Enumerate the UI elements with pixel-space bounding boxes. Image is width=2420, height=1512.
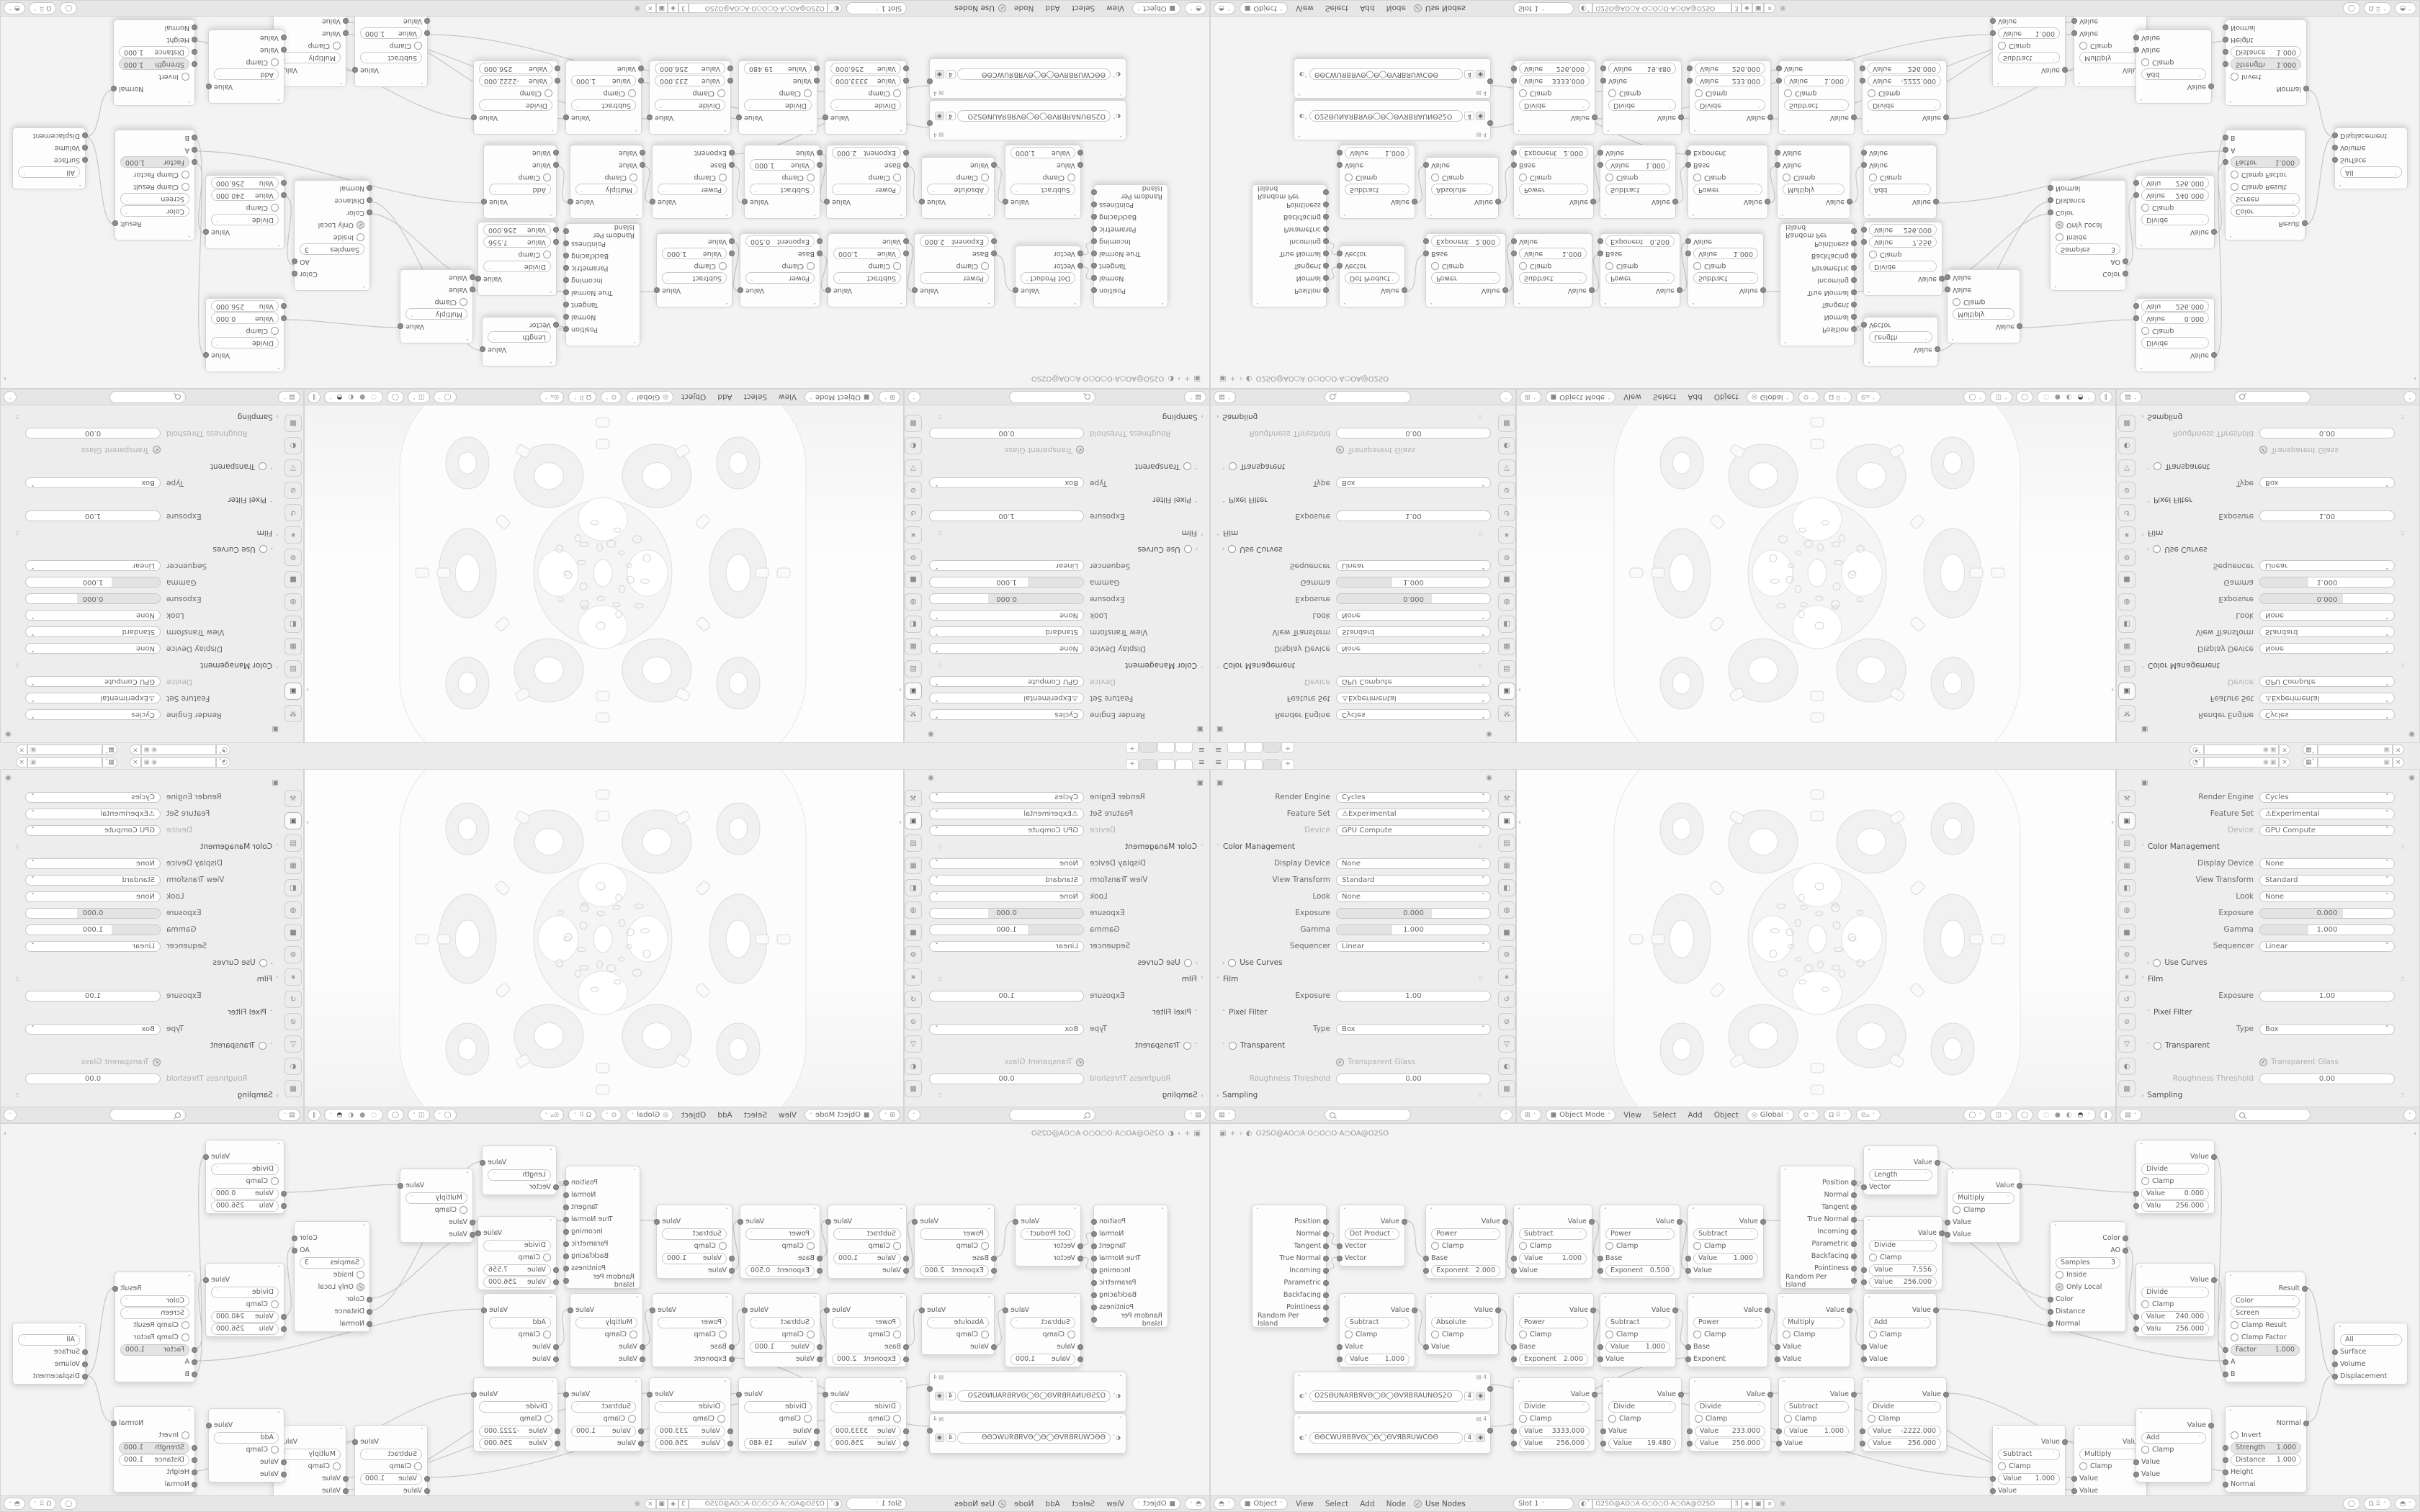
output-socket[interactable] [1765,199,1770,204]
node-header[interactable]: ˇ [1600,1294,1675,1304]
toggle-use-curves[interactable]: ›Use Curves [9,544,273,555]
view-layer-selector[interactable]: ▦ˇ▣× [2303,757,2404,768]
shading-solid-icon[interactable]: ● [358,394,367,401]
checkbox[interactable] [543,1331,551,1338]
input-socket[interactable] [2223,1457,2228,1463]
group-name-field[interactable]: ΘΘCWUЯBЯVΘ◯Θ◯ΘVЯBЯUWCΘΘ [1309,1432,1463,1444]
editor-type-button[interactable]: ▤ˇ [2120,391,2142,403]
node-dropdown[interactable]: Subtractˇ [1998,53,2060,64]
overlays-dropdown[interactable]: ◫ˇ [1990,1109,2012,1121]
output-socket[interactable] [1323,251,1329,256]
node-header[interactable]: ˇ [209,1409,284,1419]
input-socket[interactable] [2071,18,2077,24]
dropdown[interactable]: Noneˇ [929,858,1084,869]
node-dropdown[interactable]: Subtractˇ [1605,184,1670,196]
checkbox[interactable] [719,262,727,270]
input-socket[interactable] [1511,251,1517,256]
checkbox[interactable] [1869,251,1877,258]
node[interactable]: ˇValueSubtractˇClampValue1.000Value [1688,1205,1764,1279]
input-socket[interactable] [2133,1459,2139,1465]
node[interactable]: ˇPositionNormalTangentTrue NormalIncomin… [1780,223,1855,346]
input-socket[interactable] [1337,150,1343,156]
node-header[interactable]: ˇ [922,1294,994,1304]
node[interactable]: ˇValuePowerˇClampBaseExponent [1688,145,1768,219]
node-header[interactable]: ˇ [1864,285,1942,295]
output-socket[interactable] [647,1392,653,1398]
output-socket[interactable] [292,258,297,264]
dropdown[interactable]: ⚠Experimentalˇ [929,693,1084,703]
properties-tab-physics[interactable]: ↺ [284,504,302,521]
checkbox[interactable] [1431,1331,1439,1338]
output-socket[interactable] [1013,287,1018,293]
node-dropdown[interactable]: Divideˇ [2141,1164,2209,1175]
input-socket[interactable] [1597,1256,1603,1261]
snap-toggle[interactable]: ◯ [60,1498,77,1510]
input-socket[interactable] [1990,30,1996,36]
properties-tab-output[interactable]: ▤ [2118,834,2136,852]
properties-tab-render[interactable]: ▣ [2118,812,2136,829]
output-socket[interactable] [1943,1392,1949,1398]
value-field[interactable]: Distance1.000 [119,47,189,58]
field-render-engine[interactable]: Cyclesˇ [929,791,1084,803]
shading-mode-buttons[interactable]: ◌●◐◓ˇ [2037,391,2095,403]
input-socket[interactable] [2223,37,2228,42]
input-socket[interactable] [1597,162,1603,168]
field-view-transform[interactable]: Standardˇ [25,874,161,886]
field-feature-set[interactable]: ⚠Experimentalˇ [25,808,161,819]
output-socket[interactable] [825,1219,831,1225]
input-socket[interactable] [1600,66,1606,71]
properties-tab-particles[interactable]: ∗ [2118,526,2136,544]
properties-tab-object[interactable]: ■ [284,924,302,941]
input-socket[interactable] [729,1356,735,1362]
pin-icon[interactable]: ◉ [5,730,12,738]
input-socket[interactable] [1861,150,1867,156]
input-socket[interactable] [1945,287,1950,292]
node-header[interactable]: ˇ [825,124,906,134]
output-socket[interactable] [352,1439,358,1445]
node[interactable]: ˇValuePowerˇClampBaseExponent0.500 [740,233,820,307]
checkbox[interactable] [717,1415,725,1423]
checkbox[interactable] [628,89,636,97]
node-dropdown[interactable]: Powerˇ [832,1317,901,1328]
value-field[interactable]: Valu256.000 [211,1323,279,1335]
input-socket[interactable] [2133,315,2139,321]
checkbox[interactable] [1519,174,1527,181]
input-socket[interactable] [553,1184,559,1190]
sidebar-expand-icon[interactable]: ‹ [4,374,6,382]
properties-tab-tool[interactable]: ⚒ [905,790,922,807]
output-socket[interactable] [1765,1308,1770,1313]
node[interactable]: ˇValueSubtractˇClampValue1.000Value [565,1377,642,1452]
close-icon[interactable]: × [1764,1499,1775,1509]
field-type[interactable]: Boxˇ [2259,477,2395,489]
output-socket[interactable] [823,1392,828,1398]
node-header[interactable]: ˇ [295,280,369,290]
properties-tab-object[interactable]: ■ [905,924,922,941]
value-field[interactable]: Valu256.000 [2141,178,2209,189]
value-field[interactable]: Value233.000 [1695,76,1765,87]
output-socket[interactable] [2303,1421,2309,1426]
node[interactable]: ˇColorAOSamples3Inside✓Only LocalColorDi… [294,180,370,291]
workspace-tab[interactable] [1227,743,1245,753]
input-socket[interactable] [638,78,644,84]
node[interactable]: ˇValueSubtractˇClampValue1.000Value [656,233,732,307]
value-field[interactable]: Exponent0.500 [1605,236,1675,248]
input-socket[interactable] [991,1268,997,1274]
node-header[interactable]: ˇ [295,1222,369,1232]
output-socket[interactable] [563,1205,569,1210]
node-header[interactable]: ˇ [1688,1294,1767,1304]
input-socket[interactable] [1511,1344,1517,1350]
checkbox[interactable] [1953,298,1960,306]
view-layer-selector[interactable]: ▦ˇ▣× [2303,744,2404,755]
properties-tab-object-data[interactable]: ▽ [2118,1035,2136,1053]
value-field[interactable]: 0.000 [2259,593,2395,604]
sidebar-expand-icon[interactable]: › [306,685,309,693]
properties-tab-modifiers[interactable]: ⚙ [284,549,302,566]
dropdown[interactable]: Cyclesˇ [929,709,1084,720]
field-type[interactable]: Boxˇ [25,1023,161,1035]
field-device[interactable]: GPU Computeˇ [25,824,161,836]
node[interactable]: ˇValueSubtractˇClampValue1.000Value [744,145,820,219]
output-socket[interactable] [563,302,569,307]
output-socket[interactable] [2123,271,2128,276]
checkbox[interactable]: ✓ [998,1500,1006,1508]
copy-icon[interactable]: ▣ [1752,1499,1765,1509]
editor-type-button[interactable]: ▤ˇ [278,1109,300,1121]
group-datablock-row[interactable]: ◐ˇO2SΘUNAЯBЯVΘ◯Θ◯ΘVЯBЯAUNΘS2O4◈ [930,1390,1126,1402]
node-dropdown[interactable]: Addˇ [1869,1317,1931,1328]
input-socket[interactable] [343,30,349,36]
xray-toggle[interactable]: ◯ [387,391,404,403]
output-socket[interactable] [1851,1266,1857,1272]
checkbox[interactable]: ✓ [1414,4,1422,12]
output-socket[interactable] [111,86,117,91]
input-socket[interactable] [727,1428,733,1434]
value-field[interactable]: Value1.000 [1010,148,1075,159]
group-name-field[interactable]: O2SΘUNAЯBЯVΘ◯Θ◯ΘVЯBЯAUNΘS2O [957,111,1111,122]
node-group[interactable]: ˇ▤ 4◐ˇO2SΘUNAЯBЯVΘ◯Θ◯ΘVЯBЯAUNΘS2O4◈ [929,100,1126,140]
node-header[interactable]: ˇ [1340,1294,1415,1304]
input-socket[interactable] [192,1470,197,1475]
properties-tab-object-data[interactable]: ▽ [2118,459,2136,477]
xray-toggle[interactable]: ◯ [2016,1109,2033,1121]
node[interactable]: ˇValueAddˇClampValueValue [208,1408,284,1482]
dropdown[interactable]: Cyclesˇ [1336,792,1491,803]
output-socket[interactable] [1592,114,1597,120]
group-name-field[interactable]: ΘΘCWUЯBЯVΘ◯Θ◯ΘVЯBЯUWCΘΘ [1309,69,1463,81]
output-socket[interactable] [203,1277,209,1283]
properties-tab-render[interactable]: ▣ [1498,683,1515,700]
field-look[interactable]: Noneˇ [929,891,1084,902]
output-socket[interactable] [1323,263,1329,269]
input-socket[interactable] [1077,1356,1083,1362]
output-socket[interactable] [563,228,569,234]
output-socket[interactable] [1091,1317,1097,1323]
node[interactable]: ˇNormalInvertStrength1.000Distance1.000H… [2225,19,2307,106]
node-dropdown[interactable]: Divideˇ [1695,1401,1765,1413]
node-header[interactable]: ˇ [1688,297,1763,307]
value-field[interactable]: 1.00 [25,991,161,1002]
node-dropdown[interactable]: Divideˇ [211,338,279,349]
field-feature-set[interactable]: ⚠Experimentalˇ [25,693,161,704]
properties-tab-output[interactable]: ▤ [284,834,302,852]
node-dropdown[interactable]: Allˇ [2340,167,2402,179]
checkbox[interactable] [717,89,725,97]
node-header[interactable]: ˇ [2136,238,2214,248]
field-type[interactable]: Boxˇ [1336,477,1491,489]
input-socket[interactable] [1597,238,1603,244]
value-field[interactable]: Exponent2.000 [1519,1354,1588,1365]
workspace-tab[interactable] [1139,743,1157,753]
field-display-device[interactable]: Noneˇ [2259,858,2395,869]
properties-tab-object-data[interactable]: ▽ [1498,459,1515,477]
input-socket[interactable] [82,145,88,150]
properties-tab-texture[interactable]: ▩ [2118,415,2136,432]
node-dropdown[interactable]: Multiplyˇ [405,1192,467,1204]
value-field[interactable]: Exponent0.500 [745,236,815,248]
node[interactable]: ˇValueDivideˇClampValue233.000Value256.0… [1689,60,1771,135]
output-socket[interactable] [398,1183,403,1189]
output-socket[interactable] [1851,1192,1857,1198]
node-dropdown[interactable]: Divideˇ [655,1401,725,1413]
node-dropdown[interactable]: Lengthˇ [1869,332,1932,343]
input-socket[interactable] [192,1372,197,1377]
checkbox[interactable] [1998,42,2006,50]
shader-type-dropdown[interactable]: ■Objectˇ [1240,1498,1288,1510]
node-header[interactable]: ˇ [1016,1205,1080,1215]
value-field[interactable]: Value3333.000 [830,1426,901,1437]
field-sequencer[interactable]: Linearˇ [1336,560,1491,572]
node-header[interactable]: ˇ [1340,1205,1404,1215]
dropdown[interactable]: Noneˇ [25,891,161,902]
node[interactable]: ˇValueSubtractˇClampValue1.000Value [828,1205,907,1279]
input-socket[interactable] [1511,1428,1517,1434]
output-socket[interactable] [1412,199,1417,204]
dropdown[interactable]: Boxˇ [929,1024,1084,1035]
output-socket[interactable] [1323,1268,1329,1274]
output-socket[interactable] [1851,1229,1857,1235]
properties-tab-view-layer[interactable]: ▦ [2118,857,2136,874]
field-look[interactable]: Noneˇ [1336,610,1491,621]
output-socket[interactable] [398,323,403,329]
properties-tab-modifiers[interactable]: ⚙ [1498,549,1515,566]
node-header[interactable]: ˇ [653,1294,732,1304]
node-header[interactable]: ˇ [478,1217,556,1227]
checkbox[interactable] [2141,327,2149,335]
filter-options-button[interactable]: ˇ [1500,391,1512,403]
output-socket[interactable] [1013,1219,1018,1225]
properties-tab-particles[interactable]: ∗ [905,968,922,986]
checkbox[interactable] [981,174,989,181]
pin-icon[interactable]: ◉ [2408,774,2415,782]
value-field[interactable]: 0.000 [929,593,1084,604]
output-socket[interactable] [1091,238,1097,244]
value-field[interactable]: Value19.480 [1608,1438,1676,1449]
properties-tab-view-layer[interactable]: ▦ [284,857,302,874]
field-gamma[interactable]: 1.000 [2259,577,2395,588]
node-header[interactable]: ˇ [114,95,194,105]
use-nodes-toggle[interactable]: ✓Use Nodes [1414,4,1466,13]
menu-add[interactable]: Add [1041,4,1063,13]
field-view-transform[interactable]: Standardˇ [929,874,1084,886]
section-color-management[interactable]: ˇColor Management⠿ [1216,660,1482,671]
node[interactable]: ˇValueDivideˇClampValue233.000Value256.0… [649,1377,731,1452]
checkbox[interactable] [1868,89,1875,97]
node-dropdown[interactable]: Powerˇ [1605,273,1675,284]
section-film[interactable]: ˇFilm⠿ [1216,527,1482,539]
field-type[interactable]: Boxˇ [929,477,1084,489]
input-socket[interactable] [2332,145,2338,150]
checkbox[interactable] [2154,463,2161,471]
input-socket[interactable] [281,1459,287,1465]
checkbox[interactable] [1868,1415,1875,1423]
input-socket[interactable] [1597,1268,1603,1274]
input-socket[interactable] [82,1362,88,1367]
group-datablock-row[interactable]: ◐ˇΘΘCWUЯBЯVΘ◯Θ◯ΘVЯBЯUWCΘΘ4◈ [1294,1431,1490,1444]
node-header[interactable]: ˇ [930,1372,1126,1382]
input-socket[interactable] [2332,1362,2338,1367]
sidebar-expand-icon[interactable]: ‹ [2414,1130,2416,1138]
value-field[interactable]: Factor1.000 [120,157,189,168]
dropdown[interactable]: Linearˇ [929,941,1084,952]
output-socket[interactable] [1323,226,1329,232]
value-field[interactable]: Value7.556 [1869,237,1937,248]
value-field[interactable]: 1.00 [929,510,1084,521]
output-socket[interactable] [1091,287,1097,293]
checkbox[interactable] [1869,174,1877,181]
field-feature-set[interactable]: ⚠Experimentalˇ [1336,693,1491,704]
output-socket[interactable] [475,276,481,282]
material-datablock[interactable]: ◐ˇO2SO@AO○A·O○O○O·A○OA@O2SO3◈▣× [645,4,842,14]
search-input[interactable] [1009,391,1095,403]
node-header[interactable]: ˇ [484,208,556,218]
node-group[interactable]: ˇ▤ 4◐ˇΘΘCWUЯBЯVΘ◯Θ◯ΘVЯBЯUWCΘΘ4◈ [929,1413,1126,1454]
pin-icon[interactable]: ◉ [5,774,12,782]
input-socket[interactable] [2223,1359,2228,1365]
input-socket[interactable] [903,78,909,84]
node-dropdown[interactable]: Divideˇ [1608,100,1676,112]
properties-tab-view-layer[interactable]: ▦ [284,638,302,655]
dropdown[interactable]: Cyclesˇ [929,792,1084,803]
input-socket[interactable] [192,1445,197,1451]
input-socket[interactable] [1860,78,1865,84]
node-dropdown[interactable]: Powerˇ [1605,1228,1675,1240]
shading-material-icon[interactable]: ◐ [2065,394,2074,401]
node[interactable]: ˇValuePowerˇClampBaseExponent2.000 [1513,145,1594,219]
node-dropdown[interactable]: Multiplyˇ [1783,184,1845,196]
input-socket[interactable] [343,1488,349,1494]
properties-tab-physics[interactable]: ↺ [2118,991,2136,1008]
output-socket[interactable] [1091,263,1097,269]
checkbox[interactable] [2231,1431,2238,1439]
input-socket[interactable] [1077,1344,1083,1350]
checkbox[interactable] [1608,89,1616,97]
checkbox[interactable] [181,1321,189,1329]
node-header[interactable]: ˇ [1778,208,1850,218]
node[interactable]: ˇColorAOSamples3Inside✓Only LocalColorDi… [2050,180,2126,291]
node[interactable]: ˇPositionNormalTangentTrue NormalIncomin… [1252,184,1327,307]
properties-tab-material[interactable]: ◐ [1498,1058,1515,1075]
node-header[interactable]: ˇ [400,333,472,343]
menu-add[interactable]: Add [714,393,735,402]
node-header[interactable]: ˇ [828,297,906,307]
properties-tab-tool[interactable]: ⚒ [905,705,922,722]
node-group[interactable]: ˇ▤ 4◐ˇΘΘCWUЯBЯVΘ◯Θ◯ΘVЯBЯUWCΘΘ4◈ [929,58,1126,99]
output-socket[interactable] [2302,1286,2308,1292]
group-datablock-row[interactable]: ◐ˇO2SΘUNAЯBЯVΘ◯Θ◯ΘVЯBЯAUNΘS2O4◈ [1294,1390,1490,1402]
shading-mode-buttons[interactable]: ◌●◐◓ˇ [2037,1109,2095,1121]
checkbox[interactable] [2154,1042,2161,1050]
fake-user-shield-icon[interactable]: ◈ [1742,4,1752,14]
value-field[interactable]: 1.000 [1336,924,1491,935]
properties-tab-scene[interactable]: ◧ [284,879,302,896]
checkbox[interactable] [1783,174,1791,181]
sidebar-expand-icon[interactable]: › [2111,685,2114,693]
node-dropdown[interactable]: Subtractˇ [360,1449,422,1460]
node-header[interactable]: ˇ [2136,1140,2214,1151]
properties-tab-output[interactable]: ▤ [2118,660,2136,678]
node-dropdown[interactable]: Divideˇ [479,100,552,112]
dropdown[interactable]: Linearˇ [2259,941,2395,952]
checkbox[interactable] [2056,233,2063,241]
node[interactable]: ˇValueDivideˇClampValue0.000Valu256.000 [205,298,284,372]
output-socket[interactable] [824,199,830,204]
output-socket[interactable] [1323,189,1329,195]
output-socket[interactable] [738,287,743,293]
input-socket[interactable] [1511,1256,1517,1261]
field-display-device[interactable]: Noneˇ [2259,643,2395,654]
input-socket[interactable] [2223,49,2228,55]
input-socket[interactable] [1685,1268,1691,1274]
section-pixel-filter[interactable]: ˇPixel Filter [1222,1007,1488,1018]
node-header[interactable]: ˇ [1252,297,1326,307]
checkbox[interactable] [2231,1333,2238,1341]
checkbox[interactable] [1605,1242,1613,1250]
node-header[interactable]: ˇ [13,179,85,189]
checkbox[interactable]: ✓ [998,4,1006,12]
shading-solid-icon[interactable]: ● [358,1112,367,1119]
input-socket[interactable] [1511,66,1517,71]
value-field[interactable]: Distance1.000 [119,1454,189,1466]
output-socket[interactable] [2017,1183,2022,1189]
menu-select[interactable]: Select [1322,1500,1352,1508]
node[interactable]: ˇValueMultiplyˇClampValueValue [1777,145,1850,219]
node-dropdown[interactable]: Addˇ [2141,1432,2206,1444]
checkbox[interactable]: ✓ [1076,446,1084,454]
node[interactable]: ˇValueSubtractˇClampValue1.000Value [1600,1293,1676,1367]
menu-add[interactable]: Add [1684,393,1706,402]
node-group[interactable]: ˇ▤ 4◐ˇO2SΘUNAЯBЯVΘ◯Θ◯ΘVЯBЯAUNΘS2O4◈ [1294,100,1491,140]
value-field[interactable]: Value3333.000 [830,76,901,87]
node[interactable]: ˇValuePowerˇClampBaseExponent [1688,1293,1768,1367]
input-socket[interactable] [2048,210,2053,215]
node-graph-canvas[interactable]: ˇPositionNormalTangentTrue NormalIncomin… [1211,1124,2419,1495]
input-socket[interactable] [553,1279,559,1285]
value-field[interactable]: 1.00 [929,991,1084,1002]
properties-tab-view-layer[interactable]: ▦ [1498,638,1515,655]
node[interactable]: ˇValuePowerˇClampBaseExponent0.500 [740,1205,820,1279]
snap-toggle[interactable]: ◯ [2343,1498,2360,1510]
properties-tab-view-layer[interactable]: ▦ [905,638,922,655]
group-name-field[interactable]: ΘΘCWUЯBЯVΘ◯Θ◯ΘVЯBЯUWCΘΘ [957,1432,1111,1444]
field-roughness-threshold[interactable]: 0.00 [2259,428,2395,439]
properties-tab-render[interactable]: ▣ [905,683,922,700]
input-socket[interactable] [1861,1356,1867,1362]
scene-name-field[interactable]: ◉▣ [2204,757,2279,768]
value-field[interactable]: Value256.000 [479,1438,552,1449]
